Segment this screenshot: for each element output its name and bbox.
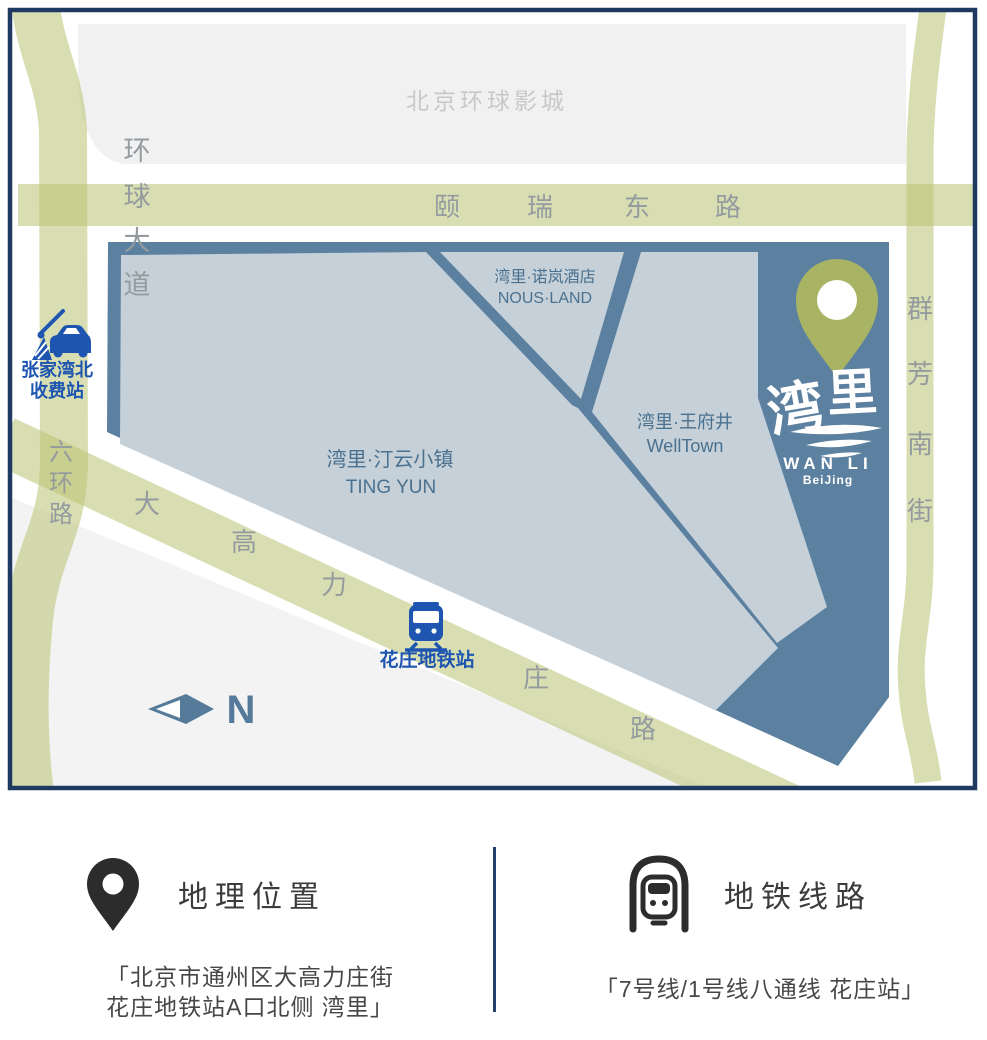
metro-lines-text: 「7号线/1号线八通线 花庄站」 (545, 974, 975, 1004)
road-label-yirui-2: 瑞 (527, 192, 553, 222)
road-label-huanqiu-3: 大 (124, 226, 151, 256)
road-label-dagaoli-4: 庄 (523, 663, 549, 693)
road-label-liuhuan-1: 六 (49, 439, 73, 466)
toll-station-label-2: 收费站 (30, 380, 84, 401)
road-label-dagaoli-1: 大 (134, 489, 160, 519)
road-label-dagaoli-3: 力 (321, 570, 347, 600)
tingyun-label-cn: 湾里·汀云小镇 (327, 448, 454, 471)
metro-lines-icon (624, 853, 694, 933)
location-address: 「北京市通州区大高力庄街 花庄地铁站A口北侧 湾里」 (40, 962, 460, 1022)
location-address-line1: 「北京市通州区大高力庄街 (40, 962, 460, 992)
compass-label: N (227, 688, 256, 732)
location-title: 地理位置 (178, 872, 326, 916)
road-qunfang-south (911, 8, 933, 782)
road-label-yirui-1: 颐 (434, 192, 460, 222)
welltown-label-cn: 湾里·王府井 (637, 412, 733, 432)
wanli-logo-cn-2: 里 (826, 364, 879, 423)
road-label-qunfang-2: 芳 (907, 359, 933, 389)
location-address-line2: 花庄地铁站A口北侧 湾里」 (40, 992, 460, 1022)
location-pin-icon (85, 855, 143, 935)
road-label-huanqiu-1: 环 (124, 136, 151, 166)
site-map: 北京环球影城 湾里·汀云小镇 TING YUN 湾里·诺岚酒店 NOUS·LAN… (0, 0, 987, 800)
road-label-qunfang-4: 街 (907, 496, 933, 526)
road-label-dagaoli-5: 路 (630, 714, 656, 744)
road-label-liuhuan-2: 环 (49, 470, 73, 497)
universal-area-label: 北京环球影城 (406, 88, 568, 114)
wanli-logo-sub: BeiJing (803, 473, 853, 487)
road-label-dagaoli-2: 高 (231, 527, 257, 557)
road-label-huanqiu-4: 道 (124, 270, 151, 300)
road-label-yirui-3: 东 (624, 192, 650, 222)
info-divider (493, 847, 496, 1012)
metro-title: 地铁线路 (724, 872, 872, 916)
wanli-logo-en: WAN LI (783, 454, 873, 473)
road-label-yirui-4: 路 (715, 192, 741, 222)
nousland-label-en: NOUS·LAND (498, 290, 592, 307)
road-label-qunfang-1: 群 (907, 294, 933, 324)
road-label-liuhuan-3: 路 (49, 501, 73, 528)
nousland-label-cn: 湾里·诺岚酒店 (494, 268, 595, 286)
road-label-qunfang-3: 南 (907, 429, 933, 459)
road-label-huanqiu-2: 球 (124, 182, 151, 212)
toll-station-label-1: 张家湾北 (21, 359, 93, 380)
tingyun-label-en: TING YUN (346, 477, 436, 498)
site-pin-hole (817, 280, 857, 320)
welltown-label-en: WellTown (647, 436, 724, 456)
metro-station-label: 花庄地铁站 (379, 648, 474, 671)
